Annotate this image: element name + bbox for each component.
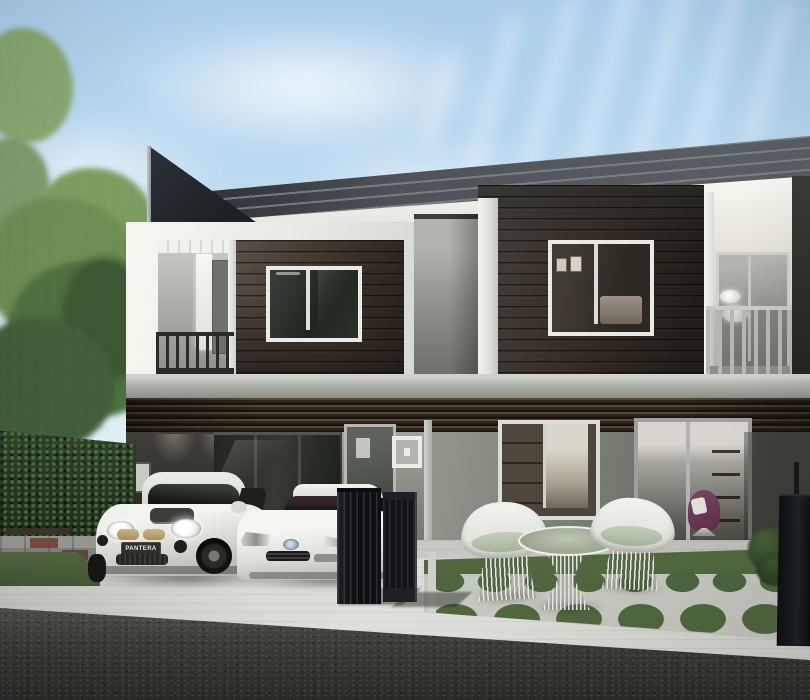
door-mullion (686, 422, 690, 554)
party-wall-pillar (414, 214, 478, 374)
grille-vent (143, 529, 165, 540)
accent-paver (30, 538, 58, 548)
side-wall-shadow (792, 176, 810, 374)
metal-slat-gate-panel (383, 492, 417, 602)
pendant-lamp (720, 290, 740, 303)
bumper-mesh-grille (116, 554, 168, 565)
bumper-vent (314, 554, 338, 562)
window-mullion (543, 424, 546, 508)
dark-fence-panel (777, 494, 810, 647)
fog-light (174, 540, 187, 553)
window-reflection (318, 270, 348, 328)
armchair-pillow (690, 497, 707, 516)
interior-shelving (502, 424, 542, 508)
fence-post (794, 462, 799, 498)
fog-light (97, 535, 108, 546)
window-mullion (306, 270, 310, 330)
grille-vent (117, 529, 139, 540)
interior-picture-frame (570, 256, 582, 272)
concrete-ledge-band (126, 374, 810, 398)
headlight (171, 519, 201, 538)
wire-lounge-chair (588, 496, 677, 596)
side-wheel (88, 554, 106, 582)
interior-bed (600, 296, 642, 324)
left-unit-balcony-railing (156, 332, 234, 374)
front-grille (266, 551, 310, 561)
metal-slat-gate-panel (337, 488, 381, 604)
left-unit-balcony-ceiling (158, 240, 228, 253)
carport-downlight-glow (152, 434, 196, 464)
right-unit-white-column (478, 198, 498, 374)
interior-ceiling-light (276, 272, 300, 275)
architectural-rendering: PANTERA (0, 0, 810, 700)
lit-corner-edge (424, 420, 432, 558)
interior-bright-room (546, 424, 588, 508)
mazda-badge (283, 539, 299, 550)
front-wheel (196, 538, 232, 574)
roof-fin-edge (147, 146, 151, 232)
window-mullion (594, 244, 598, 324)
wooden-bench (6, 528, 70, 535)
interior-picture-frame (556, 258, 567, 272)
